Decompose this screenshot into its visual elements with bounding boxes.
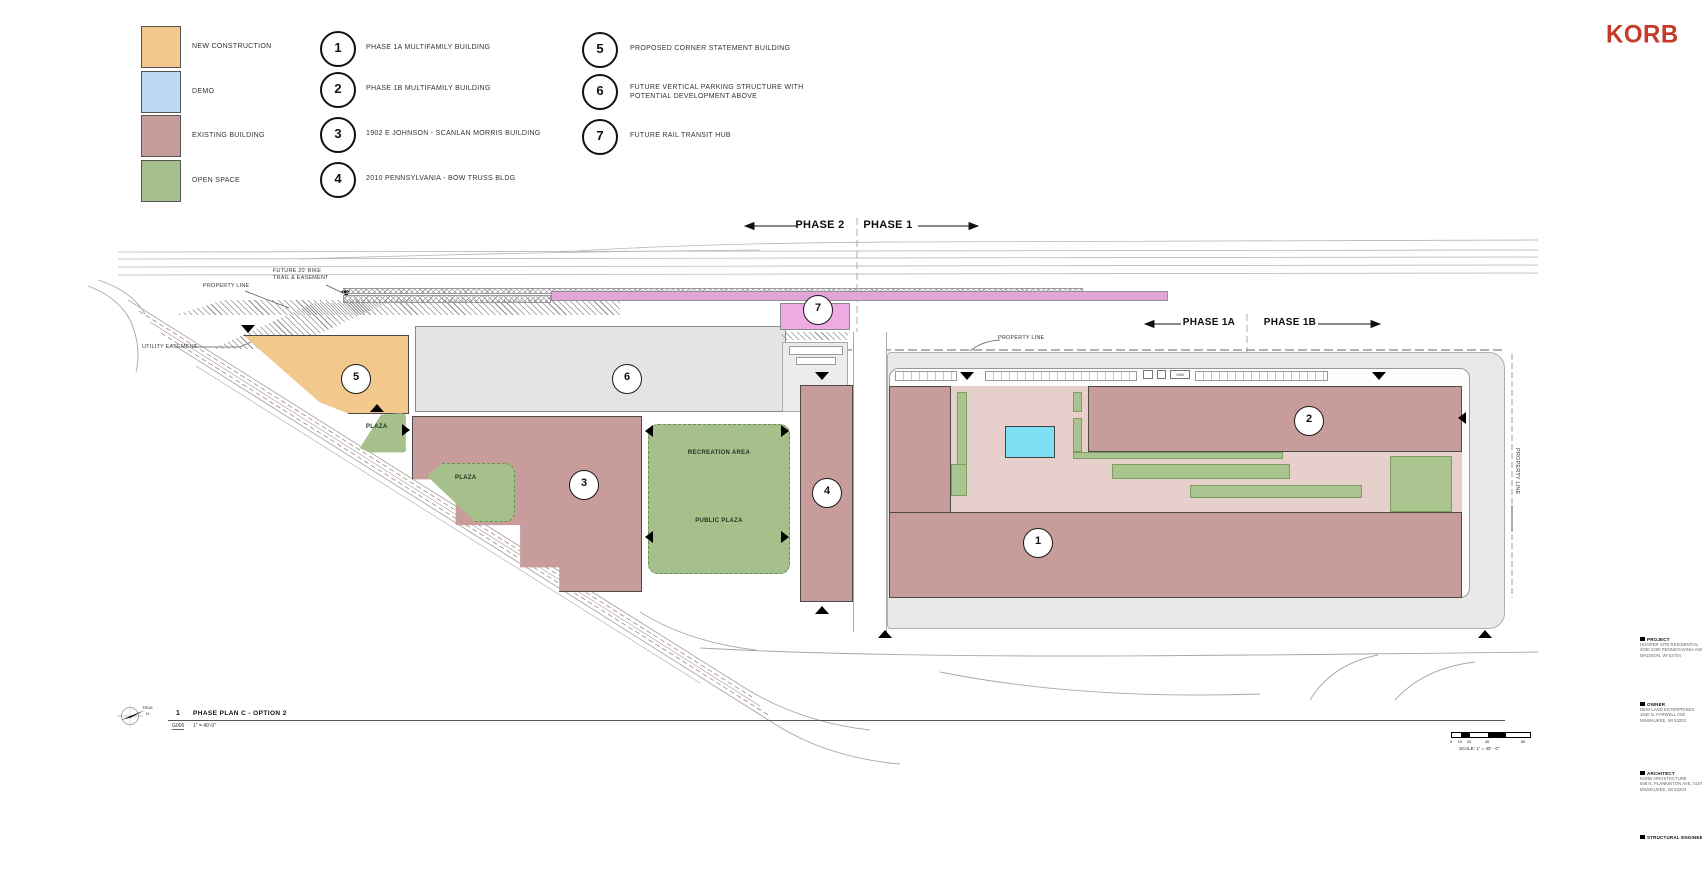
courtyard-green-strip — [1073, 418, 1082, 452]
keynote-circle-6: 6 — [582, 74, 618, 110]
map-marker-2: 2 — [1294, 406, 1324, 436]
keynote-circle-4: 4 — [320, 162, 356, 198]
architect-info-block: ARCHITECT KORB ARCHITECTURE 648 N. PLANK… — [1640, 771, 1702, 792]
keynote-circle-1: 1 — [320, 31, 356, 67]
courtyard-green-strip — [1390, 456, 1452, 512]
legend-swatch-open-space — [141, 160, 181, 202]
plaza-label: PLAZA — [455, 475, 477, 481]
phase-1a-label: PHASE 1A — [1183, 317, 1235, 328]
korb-logo: KORB — [1606, 20, 1679, 49]
entrance-marker — [645, 531, 653, 543]
courtyard-green-strip — [1073, 392, 1082, 412]
north-arrow-icon — [117, 703, 145, 729]
van-parking-sign: VAN — [1170, 370, 1190, 379]
keynote-circle-2: 2 — [320, 72, 356, 108]
info-line: MILWAUKEE, WI 53202 — [1640, 718, 1702, 723]
parking-sign — [1157, 370, 1166, 379]
legend-swatch-new-construction — [141, 26, 181, 68]
entrance-marker — [645, 425, 653, 437]
recreation-open-space — [648, 424, 790, 574]
map-marker-7: 7 — [803, 295, 833, 325]
info-header: STRUCTURAL ENGINEER — [1640, 835, 1702, 840]
entrance-marker — [1458, 412, 1466, 424]
map-marker-5: 5 — [341, 364, 371, 394]
utility-easement-label: UTILITY EASEMENT — [142, 344, 197, 350]
property-line-label: PROPERTY LINE — [998, 335, 1044, 341]
platform-detail — [789, 346, 843, 355]
courtyard-green-strip — [951, 464, 967, 496]
legend-swatch-existing-building — [141, 115, 181, 157]
legend-label: EXISTING BUILDING — [192, 132, 265, 139]
building-6-parking-structure — [415, 326, 786, 412]
keynote-label: FUTURE VERTICAL PARKING STRUCTURE WITH P… — [630, 84, 810, 101]
keynote-circle-5: 5 — [582, 32, 618, 68]
easement-hatch — [175, 300, 620, 315]
legend-swatch-demo — [141, 71, 181, 113]
vertical-street — [853, 332, 887, 632]
graphic-scale-bar: 0 10 20 40 80 SCALE: 1" = 40' - 0" — [1451, 732, 1531, 738]
map-marker-1: 1 — [1023, 528, 1053, 558]
rail-line-bar — [551, 291, 1168, 301]
map-marker-3: 3 — [569, 470, 599, 500]
entrance-marker — [370, 404, 384, 412]
platform-detail — [796, 357, 836, 365]
scale-label: SCALE: 1" = 40' - 0" — [1459, 746, 1499, 751]
legend-label: DEMO — [192, 88, 214, 95]
keynote-circle-7: 7 — [582, 119, 618, 155]
courtyard-green-strip — [1190, 485, 1362, 498]
info-line: MADISON, WI 53704 — [1640, 653, 1702, 658]
legend-label: OPEN SPACE — [192, 177, 240, 184]
info-line: MILWAUKEE, WI 53203 — [1640, 787, 1702, 792]
transit-platform-hatch — [782, 332, 848, 340]
keynote-label: FUTURE RAIL TRANSIT HUB — [630, 132, 731, 141]
keynote-label: PHASE 1B MULTIFAMILY BUILDING — [366, 85, 491, 94]
map-marker-4: 4 — [812, 478, 842, 508]
public-plaza-label: PUBLIC PLAZA — [694, 518, 744, 525]
entrance-marker — [1478, 630, 1492, 638]
legend-label: NEW CONSTRUCTION — [192, 43, 271, 50]
scale-tick: 0 — [1450, 739, 1452, 744]
scale-tick: 40 — [1485, 739, 1489, 744]
parking-strip — [895, 371, 957, 381]
keynote-label: PHASE 1A MULTIFAMILY BUILDING — [366, 44, 490, 53]
site-plan-sheet: NEW CONSTRUCTION DEMO EXISTING BUILDING … — [0, 0, 1702, 880]
bike-trail-label: FUTURE 20' BIKE TRAIL & EASEMENT — [273, 268, 335, 281]
keynote-label: 2010 PENNSYLVANIA - BOW TRUSS BLDG — [366, 175, 515, 184]
building-2-phase1b — [1088, 386, 1462, 452]
building-1-phase1a-south-wing — [889, 512, 1462, 598]
entrance-marker — [1372, 372, 1386, 380]
courtyard-green-strip — [1112, 464, 1290, 479]
plaza-label: PLAZA — [366, 424, 388, 430]
recreation-area-label: RECREATION AREA — [684, 450, 754, 457]
entrance-marker — [878, 630, 892, 638]
phase-1-label: PHASE 1 — [863, 219, 912, 231]
drawing-number: 1 — [176, 710, 180, 717]
map-marker-6: 6 — [612, 364, 642, 394]
entrance-marker — [960, 372, 974, 380]
drawing-scale: 1" = 40'-0" — [193, 723, 216, 729]
entrance-marker — [781, 531, 789, 543]
left-street-curves — [88, 280, 145, 372]
north-true-label: TRUE — [142, 705, 153, 710]
courtyard-pool — [1005, 426, 1055, 458]
keynote-label: PROPOSED CORNER STATEMENT BUILDING — [630, 45, 790, 54]
property-line-label: PROPERTY LINE — [203, 283, 249, 289]
structural-engineer-info-block: STRUCTURAL ENGINEER — [1640, 835, 1702, 840]
scale-tick: 80 — [1521, 739, 1525, 744]
sheet-code: G006 — [172, 723, 184, 730]
drawing-title: PHASE PLAN C - OPTION 2 — [193, 710, 287, 717]
parking-strip — [1195, 371, 1328, 381]
entrance-marker — [815, 372, 829, 380]
keynote-label: 1902 E JOHNSON - SCANLAN MORRIS BUILDING — [366, 130, 541, 139]
keynote-circle-3: 3 — [320, 117, 356, 153]
property-line-label-right: PROPERTY LINE — [1514, 448, 1520, 494]
scale-tick: 10 — [1458, 739, 1462, 744]
north-n-label: N — [146, 711, 149, 716]
entrance-marker — [815, 606, 829, 614]
owner-info-block: OWNER NEW LAND ENTERPRISES 1840 N. FARWE… — [1640, 702, 1702, 723]
phase-2-label: PHASE 2 — [795, 219, 844, 231]
phase-1b-label: PHASE 1B — [1264, 317, 1316, 328]
entrance-marker — [781, 425, 789, 437]
entrance-marker — [402, 424, 410, 436]
courtyard-green-strip — [1073, 452, 1283, 459]
project-info-block: PROJECT HOOPER SITE RESIDENTIAL 2030-220… — [1640, 637, 1702, 658]
entrance-marker — [241, 325, 255, 333]
parking-sign — [1143, 370, 1153, 379]
scale-tick: 20 — [1467, 739, 1471, 744]
parking-strip — [985, 371, 1137, 381]
